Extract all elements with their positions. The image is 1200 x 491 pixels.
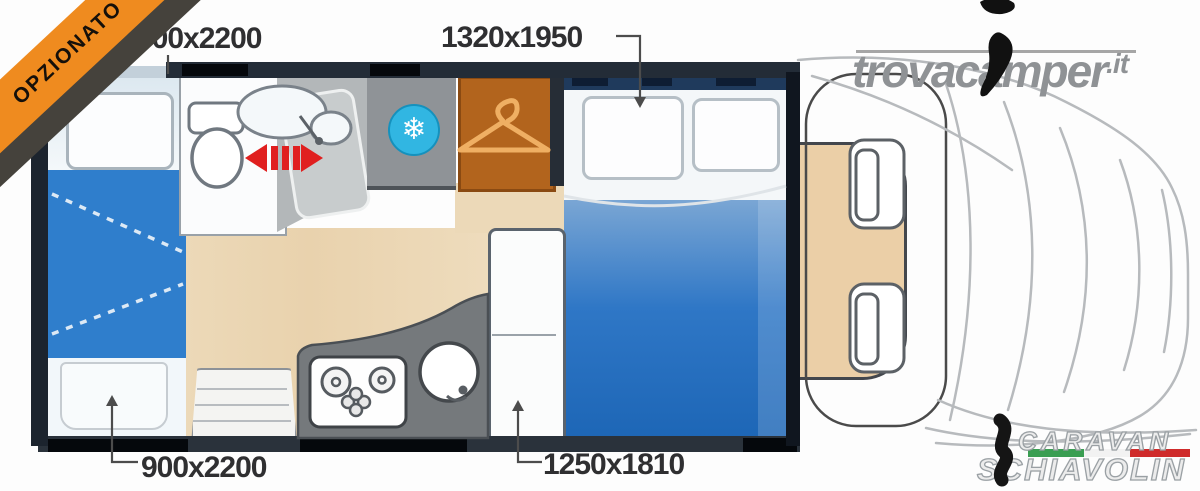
- logo-glyphs: [0, 0, 1200, 491]
- listing-floorplan-image: { "banner": { "label": "OPZIONATO", "col…: [0, 0, 1200, 491]
- dealer-mark-glyph: [1000, 420, 1007, 480]
- watermark-i-dot-glyph: [980, 0, 1015, 96]
